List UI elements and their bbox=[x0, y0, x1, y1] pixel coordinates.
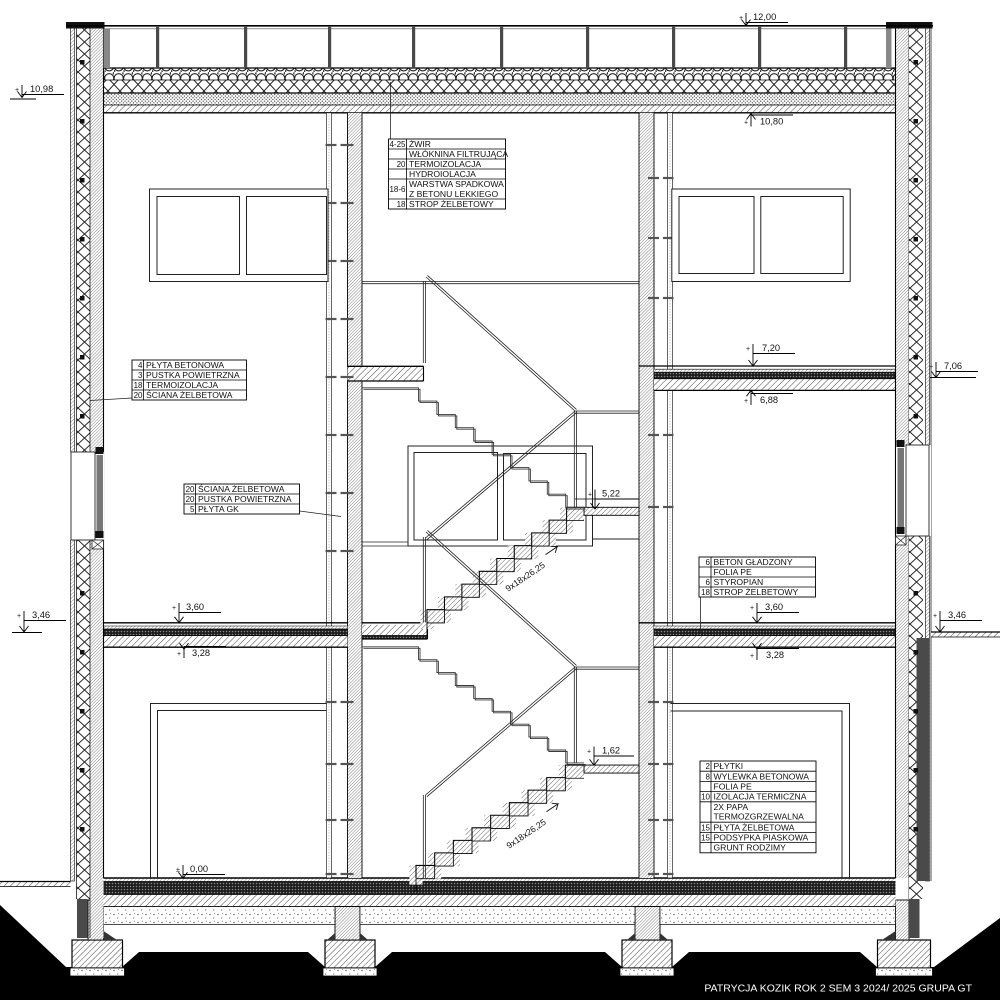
svg-text:10,98: 10,98 bbox=[30, 84, 53, 94]
svg-text:+: + bbox=[929, 364, 933, 371]
svg-text:PUSTKA POWIETRZNA: PUSTKA POWIETRZNA bbox=[198, 494, 292, 504]
svg-text:Z BETONU LEKKIEGO: Z BETONU LEKKIEGO bbox=[409, 189, 498, 199]
svg-text:GRUNT RODZIMY: GRUNT RODZIMY bbox=[714, 843, 787, 853]
svg-text:ŻWIR: ŻWIR bbox=[409, 139, 431, 149]
svg-text:+: + bbox=[587, 749, 591, 756]
svg-text:6,88: 6,88 bbox=[760, 395, 778, 405]
svg-text:STROP ŻELBETOWY: STROP ŻELBETOWY bbox=[409, 199, 494, 209]
svg-text:TERMOIZOLACJA: TERMOIZOLACJA bbox=[409, 159, 481, 169]
svg-text:4: 4 bbox=[138, 361, 143, 370]
svg-text:18: 18 bbox=[701, 588, 710, 597]
svg-text:PUSTKA POWIETRZNA: PUSTKA POWIETRZNA bbox=[146, 370, 240, 380]
svg-text:3,28: 3,28 bbox=[192, 648, 210, 658]
svg-text:18-6: 18-6 bbox=[389, 185, 406, 194]
svg-text:8: 8 bbox=[706, 772, 711, 781]
svg-text:WYLEWKA BETONOWA: WYLEWKA BETONOWA bbox=[714, 771, 810, 781]
svg-text:+: + bbox=[15, 87, 19, 94]
svg-text:HYDROIOLACJA: HYDROIOLACJA bbox=[409, 169, 476, 179]
svg-text:3: 3 bbox=[138, 371, 143, 380]
svg-text:15: 15 bbox=[701, 834, 710, 843]
svg-text:+: + bbox=[739, 15, 743, 22]
svg-text:3,46: 3,46 bbox=[948, 610, 966, 620]
svg-text:3,28: 3,28 bbox=[766, 650, 784, 660]
svg-text:3,60: 3,60 bbox=[765, 602, 783, 612]
svg-text:ŚCIANA ŻELBETOWA: ŚCIANA ŻELBETOWA bbox=[198, 483, 285, 494]
svg-text:FOLIA PE: FOLIA PE bbox=[714, 782, 752, 792]
svg-text:10,80: 10,80 bbox=[760, 117, 783, 127]
svg-text:TERMOZGRZEWALNA: TERMOZGRZEWALNA bbox=[714, 812, 805, 822]
svg-text:+: + bbox=[744, 398, 748, 405]
svg-text:PŁYTA BETONOWA: PŁYTA BETONOWA bbox=[146, 360, 224, 370]
svg-text:7,06: 7,06 bbox=[944, 361, 962, 371]
svg-text:WARSTWA SPADKOWA: WARSTWA SPADKOWA bbox=[409, 179, 504, 189]
svg-text:6: 6 bbox=[706, 558, 711, 567]
svg-text:+: + bbox=[750, 653, 754, 660]
svg-text:20: 20 bbox=[186, 495, 195, 504]
svg-text:PŁYTA ŻELBETOWA: PŁYTA ŻELBETOWA bbox=[714, 822, 795, 832]
svg-text:±: ± bbox=[176, 867, 180, 874]
svg-text:1,62: 1,62 bbox=[602, 746, 620, 756]
svg-text:+: + bbox=[933, 613, 937, 620]
svg-text:+: + bbox=[172, 605, 176, 612]
svg-text:+: + bbox=[746, 346, 750, 353]
svg-text:7,20: 7,20 bbox=[762, 343, 780, 353]
svg-text:PATRYCJA KOZIK ROK 2 SEM 3 202: PATRYCJA KOZIK ROK 2 SEM 3 2024/ 2025 GR… bbox=[704, 983, 972, 995]
svg-text:5,22: 5,22 bbox=[602, 489, 620, 499]
svg-text:3,60: 3,60 bbox=[186, 602, 204, 612]
svg-text:STROP ŻELBETOWY: STROP ŻELBETOWY bbox=[714, 587, 799, 597]
svg-text:6: 6 bbox=[706, 578, 711, 587]
svg-text:0,00: 0,00 bbox=[190, 864, 208, 874]
svg-text:+: + bbox=[177, 651, 181, 658]
svg-text:20: 20 bbox=[397, 160, 406, 169]
svg-text:20: 20 bbox=[186, 485, 195, 494]
svg-text:12,00: 12,00 bbox=[753, 12, 776, 22]
svg-text:FOLIA PE: FOLIA PE bbox=[714, 567, 752, 577]
svg-text:+: + bbox=[744, 120, 748, 127]
svg-text:+: + bbox=[750, 605, 754, 612]
svg-text:2X PAPA: 2X PAPA bbox=[714, 802, 749, 812]
svg-text:2: 2 bbox=[706, 762, 711, 771]
svg-text:STYROPIAN: STYROPIAN bbox=[714, 577, 764, 587]
svg-text:4-25: 4-25 bbox=[389, 140, 406, 149]
svg-text:BETON GŁADZONY: BETON GŁADZONY bbox=[714, 557, 793, 567]
svg-text:TERMOIZOLACJA: TERMOIZOLACJA bbox=[146, 380, 218, 390]
svg-text:PŁYTA GK: PŁYTA GK bbox=[198, 504, 239, 514]
svg-text:ŚCIANA ŻELBETOWA: ŚCIANA ŻELBETOWA bbox=[146, 389, 233, 400]
svg-text:15: 15 bbox=[701, 823, 710, 832]
svg-text:WŁÓKNINA FILTRUJĄCA: WŁÓKNINA FILTRUJĄCA bbox=[409, 149, 508, 159]
svg-text:PŁYTKI: PŁYTKI bbox=[714, 761, 744, 771]
svg-text:+: + bbox=[17, 613, 21, 620]
svg-text:3,46: 3,46 bbox=[32, 610, 50, 620]
svg-text:18: 18 bbox=[397, 200, 406, 209]
svg-text:18: 18 bbox=[134, 381, 143, 390]
svg-text:20: 20 bbox=[134, 391, 143, 400]
svg-text:PODSYPKA PIASKOWA: PODSYPKA PIASKOWA bbox=[714, 833, 809, 843]
svg-text:5: 5 bbox=[190, 505, 195, 514]
svg-text:IZOLACJA TERMICZNA: IZOLACJA TERMICZNA bbox=[714, 792, 807, 802]
svg-text:10: 10 bbox=[701, 793, 710, 802]
svg-text:+: + bbox=[588, 492, 592, 499]
